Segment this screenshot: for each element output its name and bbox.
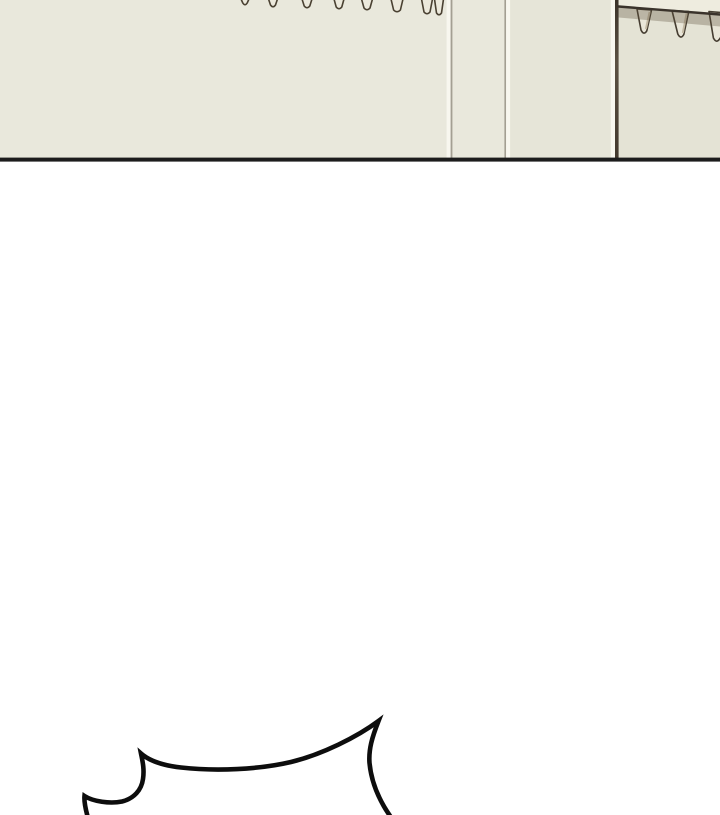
- wall-section: [0, 0, 720, 162]
- seam-highlight: [506, 0, 510, 158]
- peg-tip-icon: [391, 0, 403, 12]
- peg-tip-icon: [422, 0, 433, 14]
- seam-line: [451, 0, 453, 158]
- panel-artwork: [0, 0, 720, 815]
- seam-highlight: [611, 0, 615, 158]
- wall-background-mid: [510, 0, 620, 158]
- peg-tip-icon: [435, 0, 444, 15]
- seam-highlight: [447, 0, 451, 158]
- speech-bubble-outline: [84, 721, 391, 815]
- panel-border-line: [0, 158, 720, 162]
- speech-bubble: [84, 721, 391, 815]
- seam-line: [504, 0, 506, 158]
- seam-dark-line: [615, 0, 619, 158]
- comic-panel-page: [0, 0, 720, 815]
